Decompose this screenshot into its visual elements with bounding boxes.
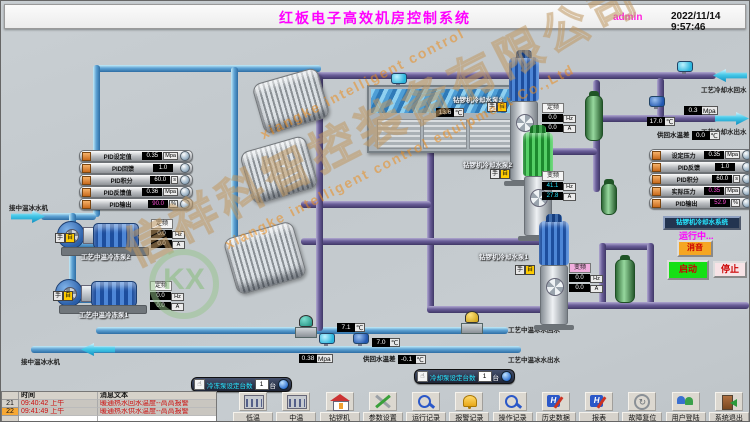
- motor: [93, 223, 139, 249]
- pid-output-bar: PID输出 90.0 %: [79, 198, 193, 210]
- magnifier-icon: [499, 392, 527, 411]
- flow-arrow-icon: [713, 69, 747, 82]
- instrument-icon: [652, 199, 661, 208]
- alarm-row[interactable]: 22 09:41:49 上午 暖通热水供水温度--高高报警: [2, 408, 216, 416]
- vfd-panel: 变频 41.1Hz 27.8A: [542, 171, 579, 202]
- spin-icon[interactable]: [278, 379, 289, 390]
- pressure-readout: 0.3Mpa: [684, 106, 718, 115]
- fan-icon: [546, 278, 564, 296]
- temperature-sensor-icon: [391, 73, 405, 86]
- pressure-sensor-icon: [649, 96, 663, 109]
- spin-icon[interactable]: [501, 371, 512, 382]
- nav-drill-machine[interactable]: 钻锣机: [320, 392, 360, 422]
- nav-alarm-log[interactable]: 报警记录: [449, 392, 489, 422]
- nav-user-login[interactable]: 用户登陆: [666, 392, 706, 422]
- house-icon: [326, 392, 354, 411]
- alarm-table-header: 时间 消息文本: [2, 392, 216, 400]
- nav-operation-log[interactable]: 操作记录: [493, 392, 533, 422]
- flow-arrow-icon: [715, 112, 749, 125]
- pid-integral-bar: PID积分 60.0 s: [79, 174, 193, 186]
- hand-pointer-icon: ☝: [417, 371, 428, 382]
- nav-low-temp[interactable]: 低温: [233, 392, 273, 422]
- instrument-icon: [82, 164, 91, 173]
- hand-auto-switch[interactable]: 手自: [490, 169, 510, 179]
- vfd-panel: 定频 0.0Hz 0.0A: [150, 281, 187, 312]
- valve-icon[interactable]: [461, 311, 483, 334]
- nav-parameter-settings[interactable]: 参数设置: [363, 392, 403, 422]
- pid-feedback-bar: PID回馈 1.0: [79, 162, 193, 174]
- instrument-icon: [82, 152, 91, 161]
- pump-base: [534, 325, 574, 330]
- instrument-icon: [82, 188, 91, 197]
- scada-screen: 红板电子高效机房控制系统 admin 2022/11/14 9:57:46 接中…: [0, 0, 750, 422]
- cooling-pump-count-setter[interactable]: ☝ 冷却泵设定台数 1 台: [414, 369, 515, 384]
- chilled-pump-count-setter[interactable]: ☝ 冷冻泵设定台数 1 台: [191, 377, 292, 392]
- pump-name: 钻锣机冷却水泵2: [463, 159, 512, 169]
- instrument-icon: [82, 176, 91, 185]
- pid-setpoint-bar: PID设定值 0.35 Mpa: [79, 150, 193, 162]
- adjust-knob-icon[interactable]: [742, 198, 750, 208]
- valve-body: [461, 323, 483, 334]
- pump-column: [540, 265, 568, 325]
- pipe-segment: [96, 65, 321, 72]
- pid-integral-bar: PID积分 60.0 s: [649, 173, 750, 185]
- tower-louver: [423, 119, 467, 149]
- instrument-icon: [652, 151, 661, 160]
- temperature-readout: 7.0℃: [372, 338, 400, 347]
- disk-icon: H: [585, 392, 613, 411]
- valve-body: [295, 327, 317, 338]
- pressure-setpoint-bar: 设定压力 0.35 Mpa: [649, 149, 750, 161]
- pid-feedback-bar: PID反馈 1.0: [649, 161, 750, 173]
- water-filter[interactable]: [615, 259, 635, 303]
- tower-louver: [377, 119, 421, 149]
- temperature-readout: 7.1℃: [337, 323, 365, 332]
- vfd-panel: 定频 0.0Hz 0.0A: [151, 219, 188, 250]
- bell-icon: [455, 392, 483, 411]
- tank-temperature-readout: 13.6℃: [436, 108, 464, 117]
- bottom-nav: 低温 中温 钻锣机 参数设置 运行记录 报警记录 操作记录: [233, 392, 749, 422]
- temp-diff-readout: 供回水温差 -0.1℃: [363, 355, 426, 364]
- hand-auto-switch[interactable]: 手自: [487, 102, 507, 112]
- adjust-knob-icon[interactable]: [180, 175, 190, 185]
- adjust-knob-icon[interactable]: [180, 199, 190, 209]
- adjust-knob-icon[interactable]: [180, 151, 190, 161]
- alarm-row[interactable]: 21 09:40:42 上午 暖通热水回水温度--高高报警: [2, 400, 216, 408]
- instrument-icon: [652, 187, 661, 196]
- logged-in-user: admin: [613, 12, 642, 23]
- water-filter[interactable]: [601, 183, 617, 215]
- pipe-label: 工艺中温冰水出水: [508, 354, 560, 364]
- hand-pointer-icon: ☝: [194, 379, 205, 390]
- instrument-icon: [652, 175, 661, 184]
- hand-auto-switch[interactable]: 手自: [53, 291, 73, 301]
- pump-name: 钻锣机冷却水泵1: [479, 251, 528, 261]
- datetime-display: 2022/11/14 9:57:46: [671, 11, 745, 33]
- building-icon: [239, 392, 267, 411]
- adjust-knob-icon[interactable]: [742, 162, 750, 172]
- pipe-segment: [599, 243, 653, 250]
- motor: [539, 221, 569, 265]
- pump-name: 工艺中温冷冻泵1: [79, 309, 128, 319]
- stop-button[interactable]: 停止: [713, 261, 747, 278]
- alarm-row-empty: [2, 416, 216, 422]
- users-icon: [672, 392, 700, 411]
- header-bar: 红板电子高效机房控制系统 admin 2022/11/14 9:57:46: [4, 4, 746, 29]
- motor: [91, 281, 137, 307]
- nav-system-exit[interactable]: 系统退出: [709, 392, 749, 422]
- temp-diff-readout: 供回水温差 0.0℃: [657, 131, 720, 140]
- pid-output-bar: PID输出 52.9 %: [649, 197, 750, 209]
- vfd-panel: 变频 0.0Hz 0.0A: [569, 263, 606, 294]
- reset-icon: ↻: [628, 392, 656, 411]
- temperature-sensor-icon: [319, 333, 333, 346]
- actual-pressure-bar: 实际压力 0.35 Mpa: [649, 185, 750, 197]
- adjust-knob-icon[interactable]: [742, 186, 750, 196]
- nav-history-data[interactable]: H 历史数据: [536, 392, 576, 422]
- instrument-icon: [652, 163, 661, 172]
- adjust-knob-icon[interactable]: [180, 187, 190, 197]
- flow-arrow-icon: [81, 343, 115, 356]
- nav-mid-temp[interactable]: 中温: [276, 392, 316, 422]
- instrument-icon: [82, 200, 91, 209]
- adjust-knob-icon[interactable]: [742, 150, 750, 160]
- pressure-readout: 0.38Mpa: [299, 354, 333, 363]
- pipe-segment: [427, 148, 434, 313]
- pid-feedback-value-bar: PID反馈值 0.36 Mpa: [79, 186, 193, 198]
- nav-run-log[interactable]: 运行记录: [406, 392, 446, 422]
- vfd-panel: 定频 0.0Hz 0.0A: [542, 103, 579, 134]
- pump-vp1[interactable]: [534, 221, 574, 330]
- valve-icon[interactable]: [295, 315, 317, 338]
- nav-report[interactable]: H 报表: [579, 392, 619, 422]
- motor: [509, 57, 539, 101]
- magnifier-icon: [412, 392, 440, 411]
- temperature-sensor-icon: [677, 61, 691, 74]
- pipe-segment: [647, 243, 654, 305]
- exit-door-icon: [715, 392, 743, 411]
- nav-fault-reset[interactable]: ↻ 故障复位: [622, 392, 662, 422]
- temperature-readout: 17.0℃: [647, 117, 675, 126]
- heat-exchanger[interactable]: [239, 135, 319, 206]
- alarm-table[interactable]: 时间 消息文本 21 09:40:42 上午 暖通热水回水温度--高高报警 22…: [1, 391, 217, 422]
- tools-icon: [369, 392, 397, 411]
- adjust-knob-icon[interactable]: [742, 174, 750, 184]
- valve-actuator: [299, 315, 313, 327]
- system-select-button[interactable]: 钻锣机冷却水系统: [663, 216, 741, 230]
- hand-auto-switch[interactable]: 手自: [515, 265, 535, 275]
- valve-actuator: [465, 311, 479, 323]
- temperature-sensor-icon: [353, 333, 367, 346]
- pipe-segment: [231, 67, 238, 247]
- pump-name: 工艺中温冷冻泵2: [81, 251, 130, 261]
- hand-auto-switch[interactable]: 手自: [55, 233, 75, 243]
- start-button[interactable]: 启动: [667, 260, 709, 280]
- disk-icon: H: [542, 392, 570, 411]
- pipe-label: 接中温冰水机: [21, 356, 60, 366]
- pipe-label: 工艺冷却水回水: [701, 84, 747, 94]
- building-icon: [282, 392, 310, 411]
- pipe-segment: [561, 302, 749, 309]
- water-filter[interactable]: [585, 95, 603, 141]
- adjust-knob-icon[interactable]: [180, 163, 190, 173]
- pipe-label: 接中温冰水机: [9, 202, 48, 212]
- motor: [523, 132, 553, 176]
- mute-button[interactable]: 消音: [677, 240, 713, 257]
